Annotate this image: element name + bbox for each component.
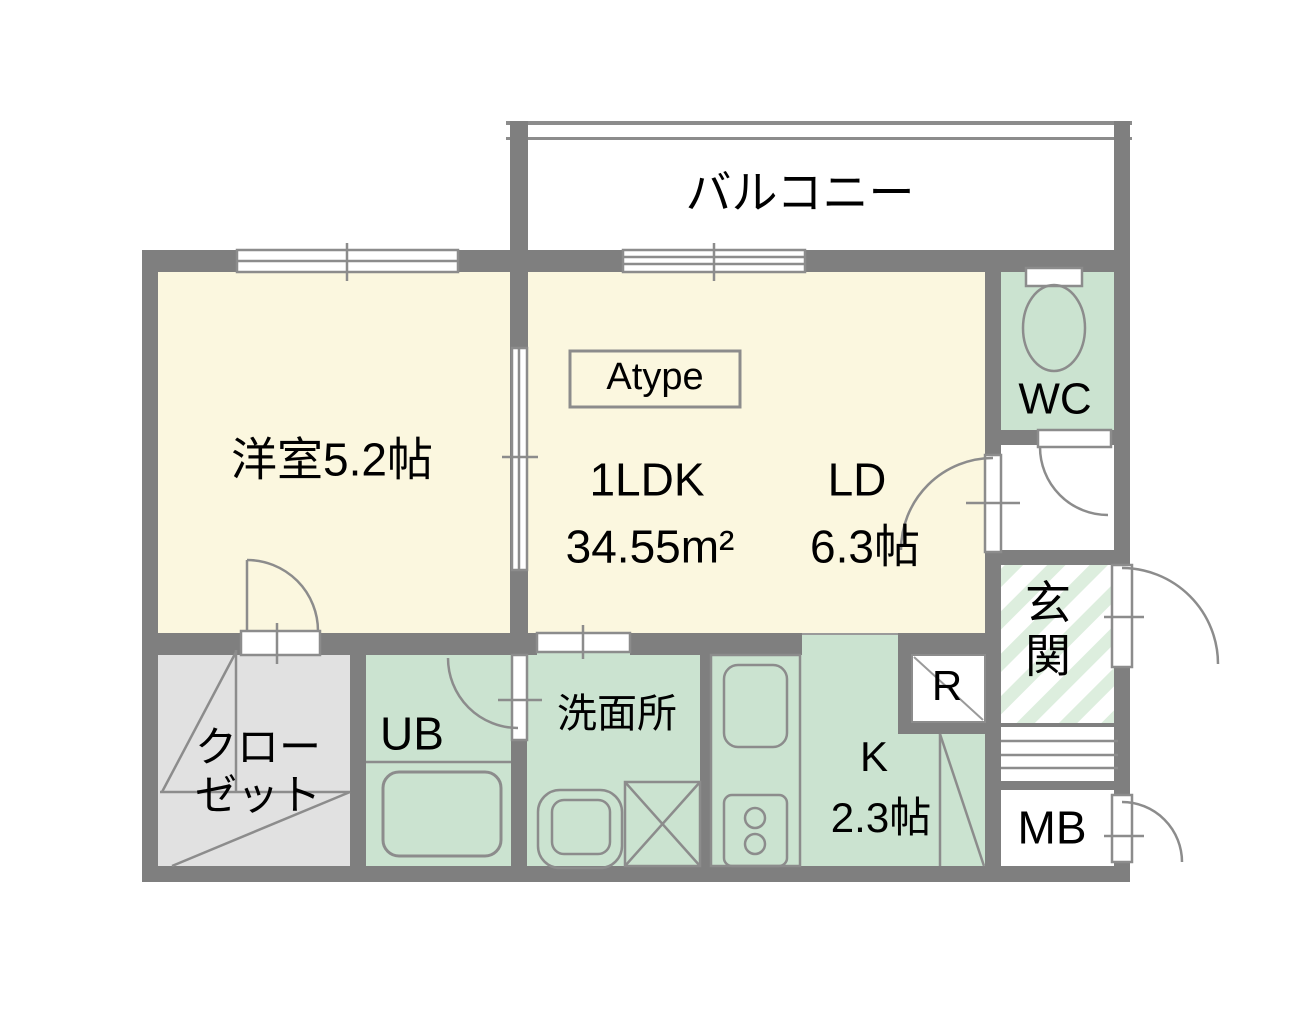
ldk-floor <box>528 270 985 635</box>
layout-type-label: 1LDK <box>589 454 704 507</box>
mb-top-wall <box>1001 781 1118 790</box>
wc-door-opening <box>1038 430 1111 447</box>
balcony-label: バルコニー <box>685 167 914 220</box>
fridge-left-wall <box>898 633 912 734</box>
type-badge: Atype <box>606 356 703 400</box>
bottom-wall <box>142 866 1130 882</box>
washroom-label: 洗面所 <box>557 691 677 737</box>
floor-plan-drawing <box>0 0 1311 1019</box>
door-opening <box>241 631 320 655</box>
entrance-step-lines <box>1001 741 1118 768</box>
floor-plan: バルコニー 洋室5.2帖 Atype 1LDK 34.55m² LD 6.3帖 … <box>0 0 1311 1019</box>
living-dining-size: 6.3帖 <box>810 521 920 574</box>
balcony-rail <box>506 121 1132 140</box>
entrance-top-wall <box>1001 550 1118 565</box>
meter-box-label: MB <box>1018 802 1087 855</box>
western-room-label: 洋室5.2帖 <box>231 434 433 487</box>
closet-label: クローゼット <box>183 724 333 821</box>
left-outer-wall <box>142 250 158 882</box>
unit-bath-label: UB <box>380 708 444 761</box>
kitchen-size-label: 2.3帖 <box>831 794 931 842</box>
mb-door-opening <box>1112 795 1132 862</box>
toilet-label: WC <box>1018 375 1091 426</box>
balcony-left-wall <box>510 121 528 272</box>
kitchen-label: K <box>860 733 888 781</box>
refrigerator-label: R <box>932 662 962 710</box>
entrance-label: 玄関 <box>1022 577 1074 683</box>
door-swing-icon <box>1040 447 1108 515</box>
living-dining-label: LD <box>828 454 887 507</box>
fridge-bottom-wall <box>898 722 1001 734</box>
total-area-label: 34.55m² <box>566 521 735 574</box>
kitchen-counter <box>711 655 800 866</box>
closet-right-wall <box>350 648 366 866</box>
hall-wall <box>985 250 1001 866</box>
